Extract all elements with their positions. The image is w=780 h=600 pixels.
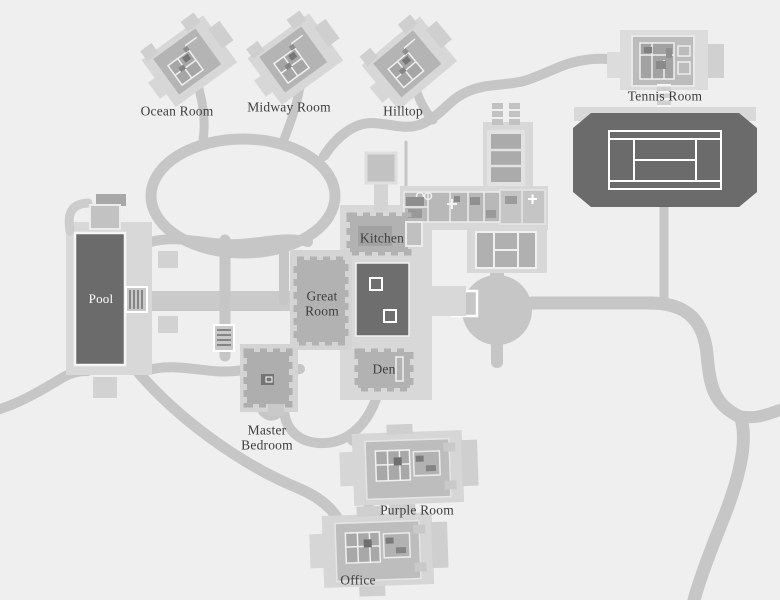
hilltop-label: Hilltop [383, 105, 423, 120]
road-left-edge [0, 371, 88, 409]
road-bottom-right [694, 419, 743, 600]
north-court [487, 130, 525, 186]
tennis-court[interactable] [573, 107, 757, 207]
tennis-room-label: Tennis Room [628, 90, 702, 105]
pool-stairs [126, 287, 147, 312]
estate-map: Ocean Room Midway Room Hilltop Tennis Ro… [0, 0, 780, 600]
road-southeast-curve [650, 303, 740, 417]
pool-label: Pool [89, 292, 114, 306]
master-bedroom-label: Master Bedroom [229, 423, 305, 452]
office-label: Office [340, 574, 375, 589]
tennis-room-building[interactable] [607, 30, 724, 90]
pool-south-pad [93, 377, 117, 398]
kitchen-label: Kitchen [360, 232, 404, 247]
ocean-room-label: Ocean Room [141, 105, 214, 120]
great-room-label: Great Room [294, 289, 350, 318]
kitchen-wing-plan [404, 190, 545, 224]
north-pad [366, 153, 396, 183]
hilltop-cottage[interactable] [350, 4, 464, 115]
garden-stairs [214, 325, 234, 351]
purple-room-label: Purple Room [380, 504, 454, 519]
den-label: Den [372, 363, 395, 378]
midway-room-label: Midway Room [247, 101, 331, 116]
midway-room-cottage[interactable] [236, 1, 351, 110]
central-courtyard [356, 263, 409, 336]
ocean-room-cottage[interactable] [130, 3, 245, 112]
south-court [476, 232, 536, 268]
parking-pads [492, 103, 520, 125]
